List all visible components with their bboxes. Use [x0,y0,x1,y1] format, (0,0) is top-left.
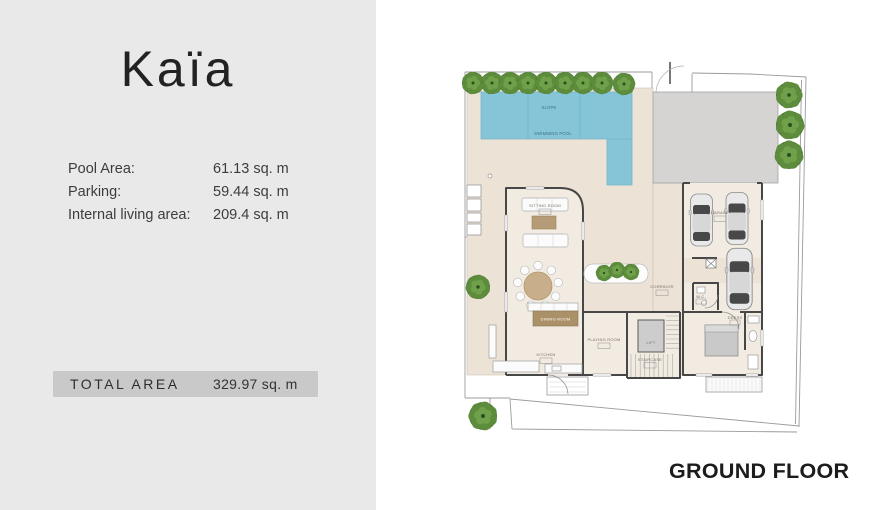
tree-icon [775,140,804,169]
label-swimming-pool: SWIMMING POOL [534,131,572,136]
floor-plan: SLOPE SWIMMING POOL [440,0,880,510]
driveway [653,92,778,183]
total-area-band: TOTAL AREA 329.97 sq. m [53,371,318,397]
car-icon [689,194,714,246]
plan-title: Kaïa [28,40,328,98]
label-sitting-room: SITTING ROOM [529,203,561,208]
stat-value-pool-area: 61.13 sq. m [213,158,289,181]
label-dress: DRESS [728,315,743,320]
label-lift: LIFT [646,340,655,345]
label-wc: W.C. [696,294,705,299]
total-area-value: 329.97 sq. m [213,376,298,392]
label-playing-room: PLAYING ROOM [588,337,621,342]
label-dining-room: DINING ROOM [541,317,571,322]
stat-label-parking: Parking: [68,181,213,204]
label-slope: SLOPE [542,105,557,110]
label-corridor: CORRIDOR [650,284,673,289]
car-icon [725,193,750,245]
total-area-label: TOTAL AREA [70,376,213,392]
label-garage: GARAGE [711,210,729,215]
dining-room-tag: DINING ROOM [533,311,578,326]
floor-plan-drawing: SLOPE SWIMMING POOL [440,0,880,510]
floorplan-sheet: Kaïa Pool Area: 61.13 sq. m Parking: 59.… [0,0,880,510]
stat-value-internal-living: 209.4 sq. m [213,204,289,227]
car-icon [725,248,754,309]
floor-label: GROUND FLOOR [669,459,809,484]
info-panel: Kaïa Pool Area: 61.13 sq. m Parking: 59.… [0,0,376,510]
stat-label-pool-area: Pool Area: [68,158,213,181]
tree-icon [776,82,803,109]
porch-and-steps [547,377,762,395]
stat-label-internal-living: Internal living area: [68,204,213,227]
stats-table: Pool Area: 61.13 sq. m Parking: 59.44 sq… [68,158,289,227]
label-kitchen: KITCHEN [537,352,556,357]
label-staircase: STAIRCASE [638,357,662,362]
tree-icon [468,402,497,431]
stat-value-parking: 59.44 sq. m [213,181,289,204]
